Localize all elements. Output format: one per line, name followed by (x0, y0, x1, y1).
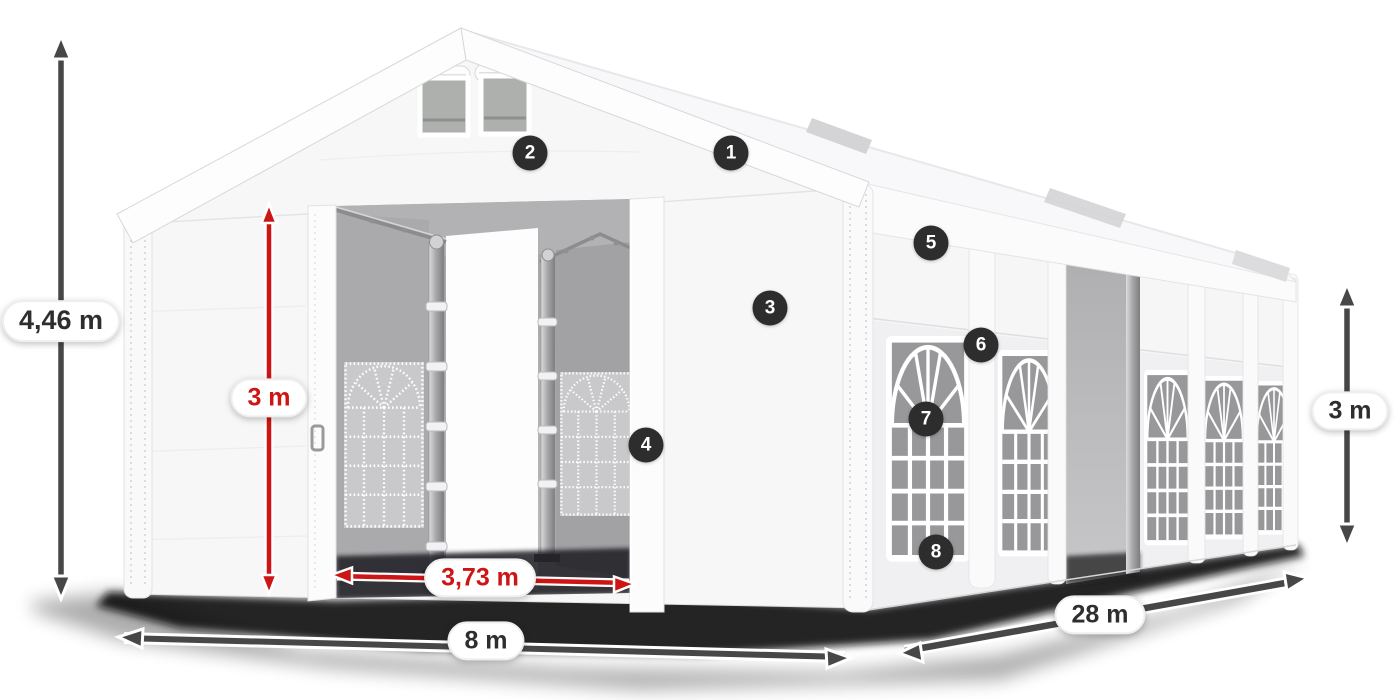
side-window-3 (1144, 370, 1191, 545)
side-entrance-opening (1066, 240, 1128, 584)
front-door-left-jamb (308, 205, 336, 601)
side-entrance-pole (1126, 250, 1140, 574)
front-left-corner-strap (124, 218, 152, 598)
dimension-side-length: 28 m (1055, 595, 1146, 634)
tent-product-diagram: 4,46 m 3 m 3,73 m 8 m 28 m 3 m 1 2 3 4 5… (0, 0, 1400, 700)
hotspot-3[interactable]: 3 (753, 291, 788, 326)
hotspot-4[interactable]: 4 (629, 428, 664, 463)
dimension-front-width: 8 m (447, 621, 524, 660)
dimension-total-height: 4,46 m (2, 300, 120, 342)
front-doorway-interior (336, 198, 633, 600)
interior-mesh-window-right (560, 372, 633, 516)
hotspot-8[interactable]: 8 (919, 535, 954, 570)
front-right-corner-strap (843, 184, 873, 612)
side-window-1 (886, 336, 970, 562)
front-door-right-panel (630, 197, 664, 612)
hotspot-5[interactable]: 5 (914, 226, 949, 261)
tent-illustration (0, 0, 1400, 700)
hotspot-1[interactable]: 1 (714, 136, 749, 171)
hotspot-6[interactable]: 6 (964, 328, 999, 363)
dimension-side-height: 3 m (1311, 391, 1388, 430)
see-through-opening (446, 228, 538, 594)
hotspot-7[interactable]: 7 (909, 402, 944, 437)
hotspot-2[interactable]: 2 (513, 136, 548, 171)
interior-mesh-window-left (344, 362, 424, 528)
dimension-door-width: 3,73 m (424, 558, 536, 597)
side-window-4 (1202, 376, 1246, 539)
dimension-door-height: 3 m (230, 378, 307, 417)
